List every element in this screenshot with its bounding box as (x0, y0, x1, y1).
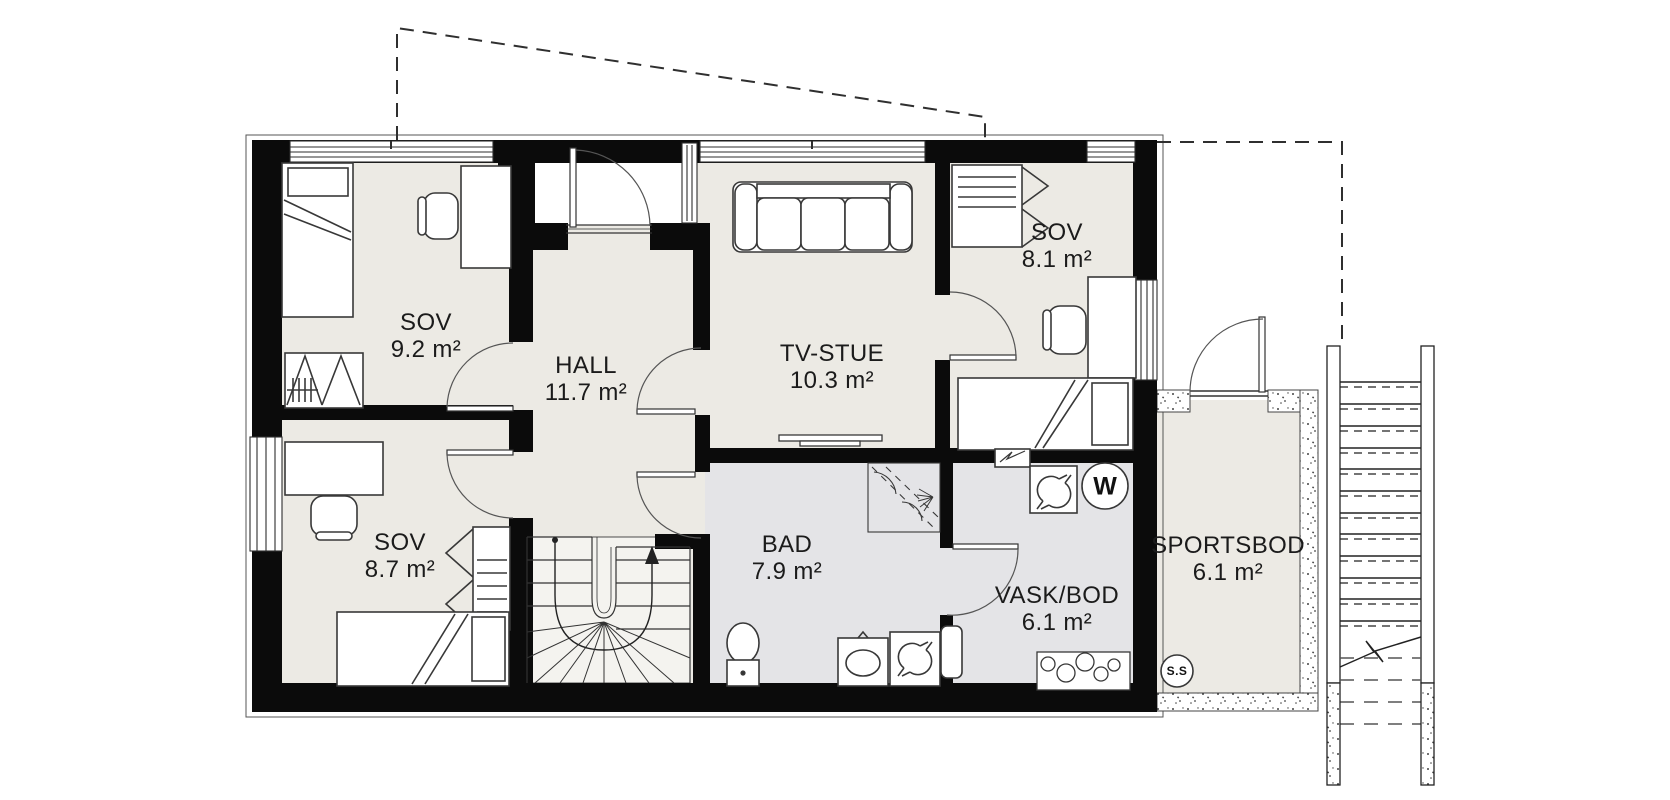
sofa-icon (733, 182, 912, 252)
sink-icon-bad (838, 632, 888, 686)
room-label-hall: HALL 11.7 m² (545, 352, 627, 406)
room-area: 10.3 m² (780, 367, 884, 394)
bed-icon-sov81 (958, 378, 1133, 450)
chair-icon-sov87 (311, 496, 357, 540)
fuse-box-icon (995, 449, 1030, 467)
window-icon-sov81-right (1135, 280, 1157, 380)
wardrobe-icon-sov92 (285, 353, 363, 408)
room-area: 11.7 m² (545, 379, 627, 406)
desk-icon-sov81 (1088, 277, 1136, 378)
water-heater-badge: W (1093, 473, 1117, 502)
room-name: HALL (545, 352, 627, 379)
room-label-sov-8-1: SOV 8.1 m² (1022, 219, 1092, 273)
window-icon-sov81-top (1087, 141, 1135, 162)
window-icon-sov87-left (250, 437, 282, 551)
room-label-bad: BAD 7.9 m² (752, 531, 822, 585)
room-name: SPORTSBOD (1151, 532, 1305, 559)
toilet-icon (727, 623, 759, 686)
room-area: 6.1 m² (1151, 559, 1305, 586)
desk-icon-sov87 (285, 442, 383, 495)
room-area: 7.9 m² (752, 558, 822, 585)
room-area: 9.2 m² (391, 336, 461, 363)
window-icon-tvstue-top (700, 141, 925, 162)
washing-machine-icon-vask (1030, 466, 1077, 513)
room-area: 8.1 m² (1022, 246, 1092, 273)
sportsbod-door-threshold (1190, 391, 1268, 396)
room-name: VASK/BOD (995, 582, 1119, 609)
tall-cabinet-icon (941, 626, 962, 678)
bed-icon-sov87 (337, 612, 509, 686)
floor-plan-drawing (0, 0, 1670, 800)
washing-machine-icon-bad (890, 632, 940, 686)
room-name: BAD (752, 531, 822, 558)
exterior-stairs-icon (1327, 346, 1434, 785)
room-name: TV-STUE (780, 340, 884, 367)
room-name: SOV (1022, 219, 1092, 246)
chair-icon-sov92 (418, 193, 458, 239)
room-area: 6.1 m² (995, 609, 1119, 636)
room-name: SOV (365, 529, 435, 556)
laundry-sink-icon (1037, 652, 1130, 690)
door-swing-icon-sportsbod (1190, 317, 1265, 392)
room-area: 8.7 m² (365, 556, 435, 583)
chair-icon-sov81 (1043, 306, 1086, 354)
room-label-sov-8-7: SOV 8.7 m² (365, 529, 435, 583)
bed-icon-sov92 (282, 163, 353, 317)
room-label-vask-bod: VASK/BOD 6.1 m² (995, 582, 1119, 636)
ss-badge: S.S (1167, 664, 1188, 678)
room-label-sportsbod: SPORTSBOD 6.1 m² (1151, 532, 1305, 586)
room-label-tv-stue: TV-STUE 10.3 m² (780, 340, 884, 394)
floor-plan-page: SOV 9.2 m² HALL 11.7 m² TV-STUE 10.3 m² … (0, 0, 1670, 800)
desk-icon-sov92 (461, 166, 511, 268)
room-name: SOV (391, 309, 461, 336)
window-icon-entry-sidelight (682, 143, 697, 223)
window-icon-sov92-top (290, 141, 493, 162)
room-label-sov-9-2: SOV 9.2 m² (391, 309, 461, 363)
